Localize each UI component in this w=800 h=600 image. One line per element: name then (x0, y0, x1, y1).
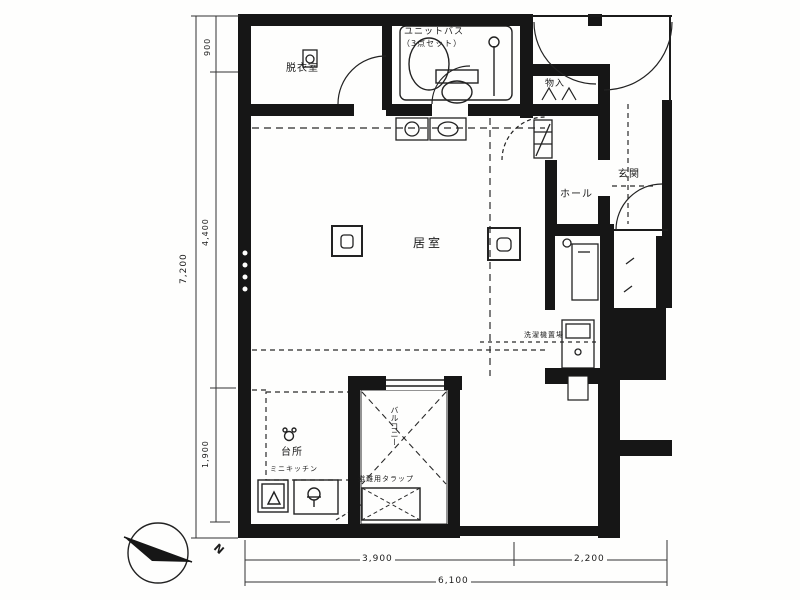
dim-bottom-total: 6,100 (436, 577, 471, 586)
shower-head-icon (489, 37, 499, 47)
compass-icon (124, 523, 192, 583)
label-mini-kitchen: ミニキッチン (270, 466, 318, 473)
dressing-door-arc (338, 56, 386, 104)
wall-right-upper (662, 100, 672, 236)
walls (238, 14, 672, 538)
balcony-linework (361, 390, 447, 524)
entry-door-arc-right (604, 22, 672, 90)
closet-mark (624, 286, 632, 292)
cabinet-icon (430, 118, 466, 140)
label-washer: 洗濯機置場 (524, 332, 564, 339)
room-label-unit-bath-sub: （3点セット） (402, 40, 462, 48)
washbasin-icon (396, 118, 428, 140)
dim-bottom-left: 3,900 (360, 555, 395, 564)
dim-left-top: 900 (204, 36, 212, 58)
washer-drain-notch (568, 376, 588, 400)
label-escape-hatch: 避難用タラップ (358, 476, 414, 483)
room-label-living: 居室 (413, 237, 443, 249)
wall-bottom (238, 524, 460, 538)
room-label-storage: 物入 (545, 80, 565, 89)
dim-left-bottom: 1,900 (202, 438, 210, 470)
room-label-kitchen: 台所 (281, 448, 303, 458)
floor-plan: 脱衣室 ユニットバス （3点セット） 物入 玄関 ホール 居室 台所 ミニキッチ… (0, 0, 800, 600)
bath-door-arc (432, 66, 470, 104)
floor-plan-drawing (0, 0, 800, 600)
wall-right-lower (598, 380, 620, 538)
room-label-hall: ホール (560, 190, 593, 200)
faucet-icon (308, 488, 320, 500)
storage-door-marks (542, 88, 576, 100)
drain-symbol-icon (285, 432, 294, 441)
hall-door-arc (502, 117, 545, 160)
unit-bath-fixtures (400, 26, 512, 103)
dim-left-total: 7,200 (180, 251, 189, 286)
room-label-dressing: 脱衣室 (286, 64, 319, 74)
closet-mark (626, 258, 634, 264)
room-label-balcony: バルコニー (390, 406, 398, 446)
washing-machine-icon (562, 320, 594, 368)
dim-left-middle: 4,400 (202, 216, 210, 248)
entrance-inner-door-arc (616, 184, 662, 230)
room-label-unit-bath: ユニットバス (404, 28, 464, 37)
dim-bottom-right: 2,200 (572, 555, 607, 564)
room-label-entrance: 玄関 (618, 170, 640, 180)
balcony-window (386, 376, 444, 390)
